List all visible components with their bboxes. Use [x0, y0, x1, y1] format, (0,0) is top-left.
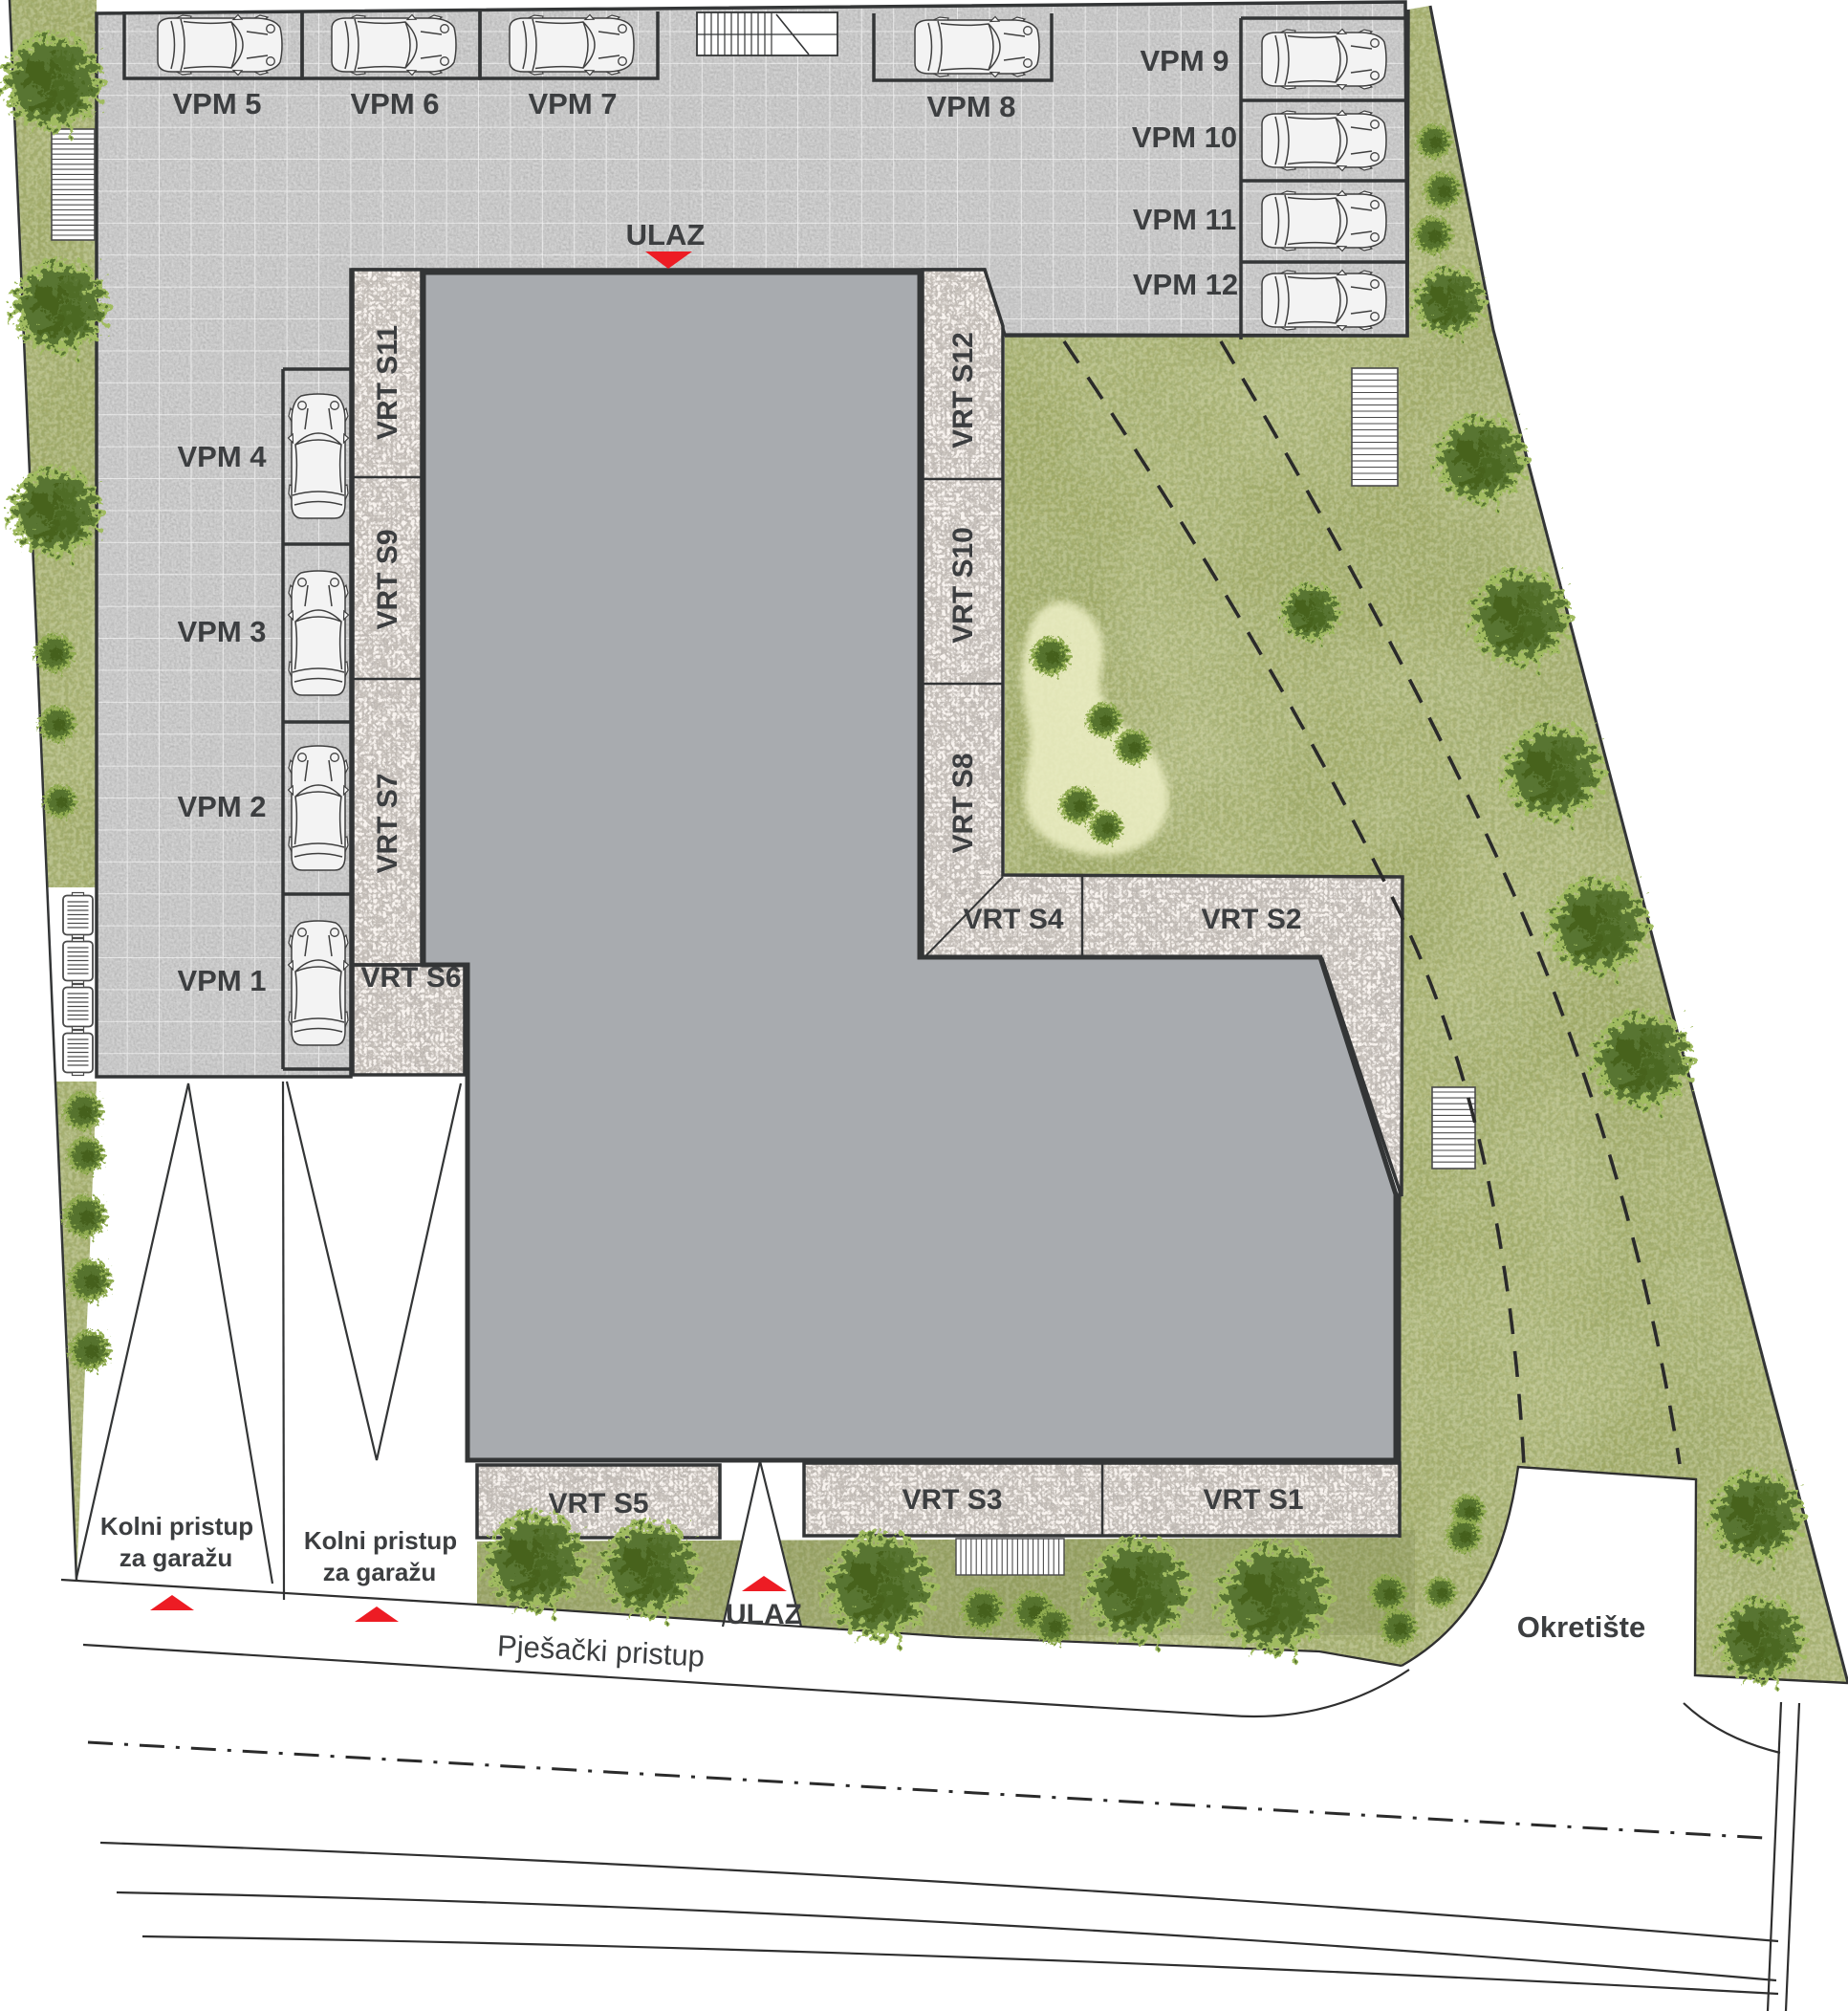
svg-text:VRT S3: VRT S3 [902, 1484, 1002, 1516]
svg-text:VPM 10: VPM 10 [1132, 120, 1237, 154]
svg-text:ULAZ: ULAZ [726, 1599, 802, 1630]
svg-text:VPM 3: VPM 3 [177, 615, 266, 648]
svg-text:VPM 1: VPM 1 [177, 964, 266, 997]
svg-text:Kolni pristup: Kolni pristup [100, 1512, 253, 1541]
svg-text:VPM 6: VPM 6 [350, 87, 439, 120]
svg-text:VPM 5: VPM 5 [172, 87, 261, 120]
svg-text:VRT S1: VRT S1 [1203, 1484, 1303, 1516]
svg-text:VRT S10: VRT S10 [947, 527, 979, 644]
svg-text:VRT S12: VRT S12 [947, 332, 979, 448]
svg-text:za garažu: za garažu [323, 1558, 437, 1586]
svg-text:VRT S8: VRT S8 [947, 753, 979, 853]
svg-text:VPM 4: VPM 4 [177, 440, 267, 473]
svg-text:Kolni pristup: Kolni pristup [304, 1526, 457, 1555]
svg-text:VRT S4: VRT S4 [963, 904, 1063, 935]
svg-text:za garažu: za garažu [120, 1543, 233, 1572]
svg-text:ULAZ: ULAZ [626, 218, 706, 251]
svg-text:VPM 8: VPM 8 [926, 90, 1015, 123]
svg-text:Okretište: Okretište [1517, 1610, 1645, 1644]
svg-text:VRT S2: VRT S2 [1201, 904, 1301, 935]
svg-text:VRT S9: VRT S9 [372, 529, 403, 629]
svg-text:VRT S7: VRT S7 [372, 773, 403, 873]
svg-text:VPM 12: VPM 12 [1133, 268, 1238, 301]
svg-text:VRT S6: VRT S6 [360, 962, 461, 994]
svg-text:VRT S11: VRT S11 [372, 325, 403, 440]
svg-text:VPM 7: VPM 7 [528, 87, 617, 120]
svg-text:VPM 2: VPM 2 [177, 790, 266, 823]
svg-text:VRT S5: VRT S5 [548, 1488, 648, 1519]
svg-text:VPM 9: VPM 9 [1140, 44, 1228, 77]
svg-text:VPM 11: VPM 11 [1133, 203, 1237, 236]
